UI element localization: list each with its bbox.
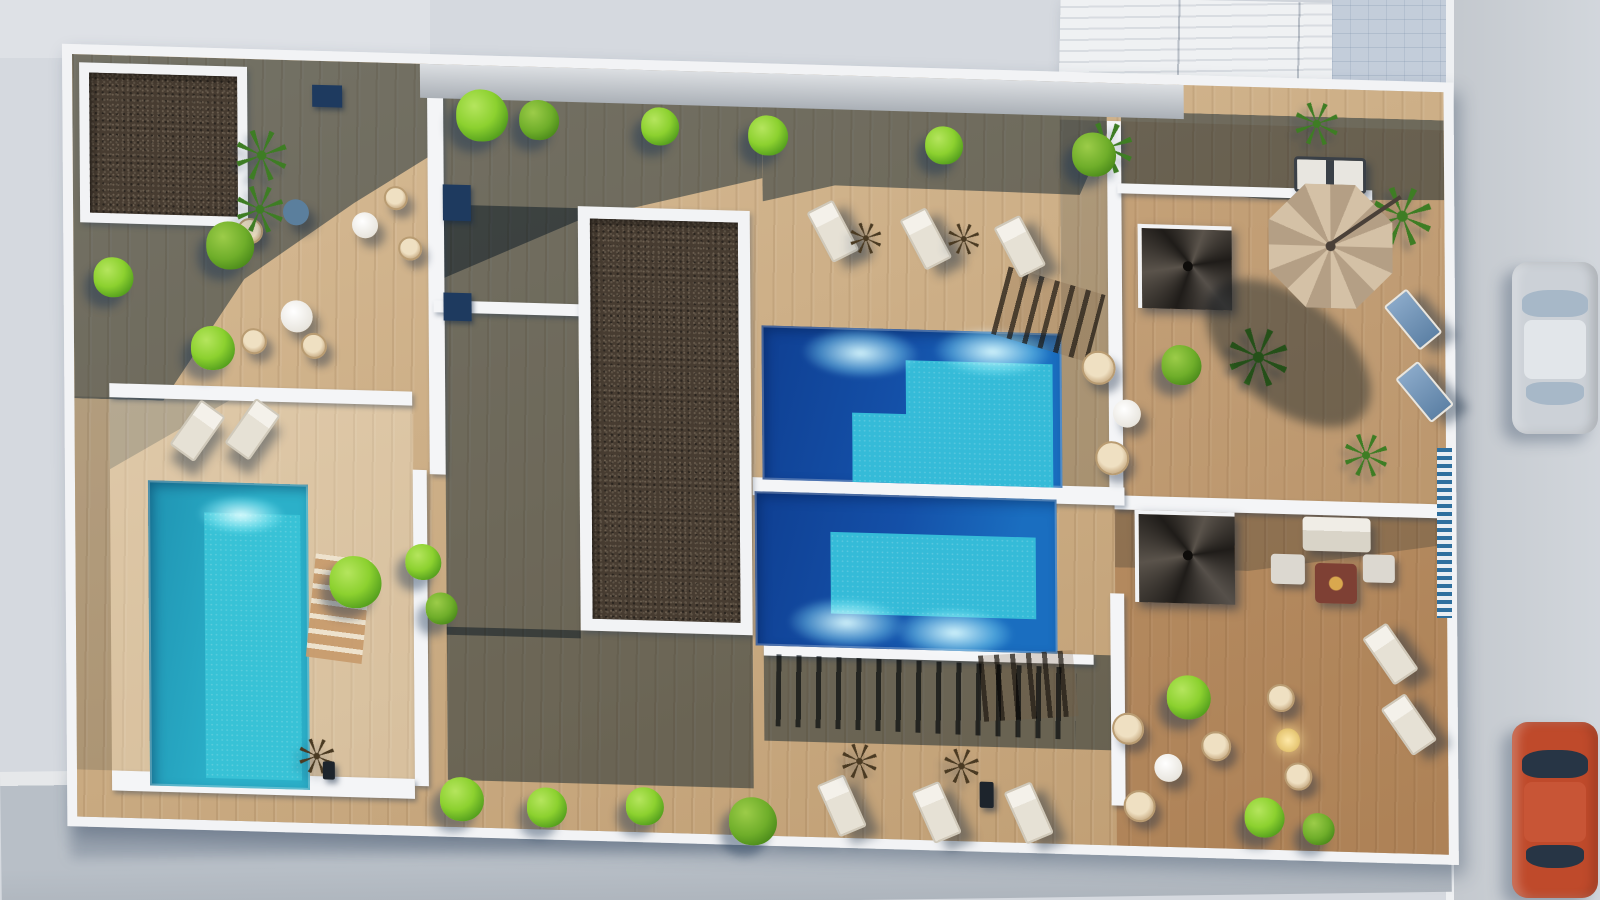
car-roof bbox=[1524, 320, 1586, 378]
wicker-chair bbox=[1124, 790, 1156, 823]
bush bbox=[641, 107, 679, 146]
terrace-site bbox=[62, 44, 1459, 865]
palm-plant bbox=[948, 223, 980, 256]
round-table bbox=[1113, 399, 1141, 428]
deck-railing bbox=[776, 654, 1077, 740]
wicker-chair bbox=[398, 236, 422, 261]
white-wall bbox=[1110, 593, 1125, 806]
cast-shadow bbox=[447, 627, 754, 789]
bush bbox=[925, 126, 963, 165]
gravel-fill bbox=[590, 219, 741, 623]
pool-left bbox=[148, 480, 310, 790]
bush bbox=[1245, 797, 1285, 838]
car-silver bbox=[1512, 262, 1598, 434]
palm-plant bbox=[235, 129, 287, 182]
bush bbox=[1303, 813, 1335, 846]
wicker-chair bbox=[384, 186, 408, 211]
bush bbox=[93, 257, 133, 298]
car-rear-window bbox=[1526, 845, 1584, 868]
bush bbox=[405, 543, 441, 580]
navy-planter-box bbox=[443, 184, 471, 221]
wicker-chair bbox=[1095, 441, 1129, 476]
spiral-center-post bbox=[1183, 550, 1193, 560]
spiral-staircase bbox=[1135, 510, 1236, 605]
cast-shadow bbox=[74, 396, 112, 770]
bush bbox=[748, 115, 788, 156]
round-table bbox=[281, 300, 313, 333]
bush bbox=[1161, 345, 1201, 386]
wicker-chair bbox=[241, 328, 267, 355]
navy-planter-box bbox=[443, 292, 471, 321]
gravel-planter-center bbox=[578, 206, 753, 635]
pool-upper bbox=[761, 325, 1062, 487]
ottoman bbox=[1363, 554, 1395, 583]
round-table bbox=[1276, 728, 1300, 753]
lounge-sofa bbox=[1303, 517, 1371, 553]
car-roof bbox=[1524, 782, 1586, 842]
caustic-light bbox=[800, 325, 920, 380]
ottoman bbox=[1271, 554, 1305, 585]
palm-plant bbox=[1344, 433, 1388, 478]
palm-plant bbox=[850, 222, 882, 255]
deck-fixture bbox=[980, 782, 994, 808]
gravel-planter-nw bbox=[79, 62, 248, 227]
round-table bbox=[283, 199, 309, 226]
palm-plant bbox=[1295, 101, 1339, 146]
wicker-chair bbox=[301, 332, 327, 359]
bush bbox=[527, 787, 567, 828]
wicker-chair bbox=[1112, 712, 1144, 745]
fire-pit-table bbox=[1315, 563, 1357, 604]
spiral-center-post bbox=[1183, 261, 1193, 271]
wicker-chair bbox=[1284, 762, 1312, 791]
wicker-chair bbox=[1201, 731, 1231, 762]
bush bbox=[626, 787, 664, 826]
wicker-chair bbox=[1081, 350, 1115, 385]
palm-plant bbox=[943, 748, 979, 785]
palm-plant bbox=[841, 743, 877, 780]
car-windshield bbox=[1522, 750, 1587, 778]
round-table bbox=[1154, 753, 1182, 782]
white-wall bbox=[413, 470, 429, 787]
white-wall bbox=[427, 76, 446, 475]
bush bbox=[519, 100, 559, 141]
car-rear-window bbox=[1526, 382, 1584, 404]
gravel-fill bbox=[89, 72, 238, 216]
rooftop-terrace-render bbox=[0, 0, 1600, 900]
blue-fence bbox=[1437, 448, 1452, 618]
cast-shadow bbox=[444, 204, 581, 638]
wicker-chair bbox=[1267, 684, 1295, 713]
navy-planter-box bbox=[312, 85, 342, 108]
pool-lower bbox=[755, 491, 1058, 654]
deck-fixture bbox=[323, 761, 335, 779]
round-table bbox=[352, 212, 378, 239]
car-red bbox=[1512, 722, 1598, 898]
bush bbox=[426, 592, 458, 625]
car-windshield bbox=[1522, 290, 1587, 318]
